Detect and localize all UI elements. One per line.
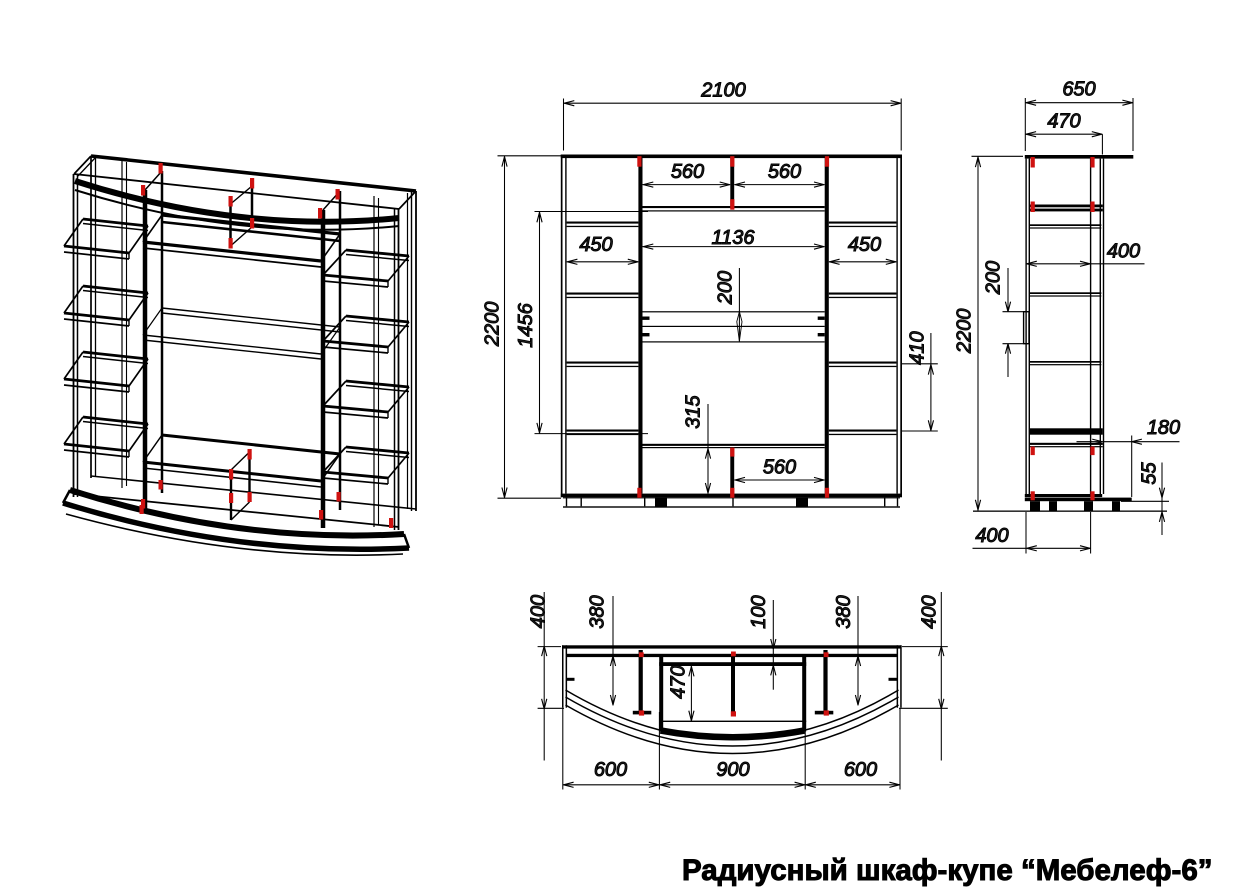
svg-text:2200: 2200 <box>482 302 504 348</box>
svg-text:400: 400 <box>975 525 1008 547</box>
svg-text:1136: 1136 <box>711 227 755 249</box>
svg-text:400: 400 <box>918 595 940 628</box>
svg-text:600: 600 <box>594 759 627 781</box>
svg-text:900: 900 <box>716 759 749 781</box>
svg-text:380: 380 <box>833 595 855 628</box>
svg-text:200: 200 <box>983 261 1005 295</box>
svg-text:410: 410 <box>907 331 929 364</box>
svg-text:470: 470 <box>1047 111 1080 133</box>
svg-text:450: 450 <box>579 234 612 256</box>
svg-text:400: 400 <box>1107 241 1140 263</box>
svg-text:560: 560 <box>763 456 796 478</box>
svg-text:380: 380 <box>586 595 608 628</box>
svg-text:650: 650 <box>1062 79 1095 101</box>
svg-text:Радиусный шкаф-купе “Мебелеф-6: Радиусный шкаф-купе “Мебелеф-6” <box>682 854 1212 887</box>
svg-text:560: 560 <box>671 161 704 183</box>
svg-text:1456: 1456 <box>515 302 537 347</box>
svg-text:560: 560 <box>768 161 801 183</box>
svg-text:2100: 2100 <box>700 80 746 102</box>
svg-text:315: 315 <box>683 394 705 428</box>
svg-text:470: 470 <box>667 665 689 698</box>
svg-text:600: 600 <box>844 759 877 781</box>
svg-text:100: 100 <box>748 595 770 628</box>
svg-text:55: 55 <box>1139 462 1161 485</box>
svg-text:450: 450 <box>848 234 881 256</box>
svg-text:200: 200 <box>715 271 737 305</box>
svg-text:400: 400 <box>528 595 550 628</box>
svg-text:2200: 2200 <box>954 309 976 355</box>
svg-text:180: 180 <box>1147 417 1180 439</box>
